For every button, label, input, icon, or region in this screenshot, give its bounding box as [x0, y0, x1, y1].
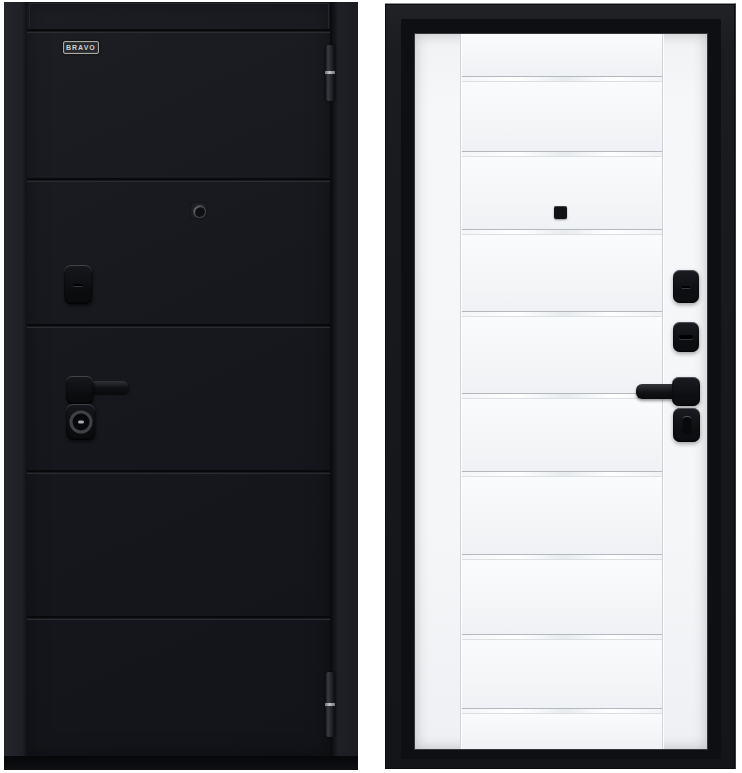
interior-panel [460, 317, 663, 393]
exterior-door-sill [4, 756, 358, 770]
keyhole-cover-escutcheon [64, 265, 92, 304]
thumbturn-knob [682, 416, 691, 434]
exterior-groove [27, 178, 330, 182]
exterior-groove [27, 29, 330, 33]
interior-panel [460, 82, 663, 151]
glass-strip-column [460, 34, 663, 749]
brand-logo-plate: BRAVO [63, 41, 99, 54]
interior-door-panel [385, 3, 736, 769]
keyhole-slot [74, 284, 83, 286]
escutcheon-slot [682, 286, 691, 288]
hinge-band [325, 703, 335, 706]
night-latch-lens [679, 335, 693, 339]
cylinder-escutcheon [66, 404, 95, 440]
exterior-door-panel: BRAVO [4, 2, 358, 770]
cylinder-pin [78, 421, 84, 424]
interior-panel [460, 560, 663, 634]
escutcheon [673, 270, 699, 303]
hinge-band [325, 71, 335, 74]
exterior-groove [27, 324, 330, 328]
interior-panel [460, 714, 663, 749]
exterior-groove [27, 470, 330, 474]
exterior-handle-rose [66, 376, 93, 404]
interior-handle-rose [672, 377, 700, 406]
product-photo: BRAVO [0, 0, 742, 773]
hinge-icon [325, 672, 335, 737]
exterior-groove [27, 616, 330, 620]
peephole-lens [193, 205, 206, 218]
interior-panel [460, 235, 663, 311]
stile-line-left [460, 34, 461, 749]
exterior-door-leaf: BRAVO [27, 2, 330, 756]
thumbturn-escutcheon [673, 408, 700, 442]
hinge-icon [325, 45, 335, 101]
exterior-frame-left [4, 2, 27, 756]
interior-panel [460, 399, 663, 471]
exterior-top-rail [29, 3, 329, 30]
interior-panel [460, 477, 663, 554]
peephole-icon [554, 206, 567, 219]
interior-panel [460, 640, 663, 708]
interior-door-leaf [415, 34, 707, 749]
peephole-icon [190, 202, 207, 219]
night-latch-escutcheon [673, 322, 699, 352]
exterior-frame-right [330, 2, 358, 756]
interior-panel [460, 34, 663, 76]
